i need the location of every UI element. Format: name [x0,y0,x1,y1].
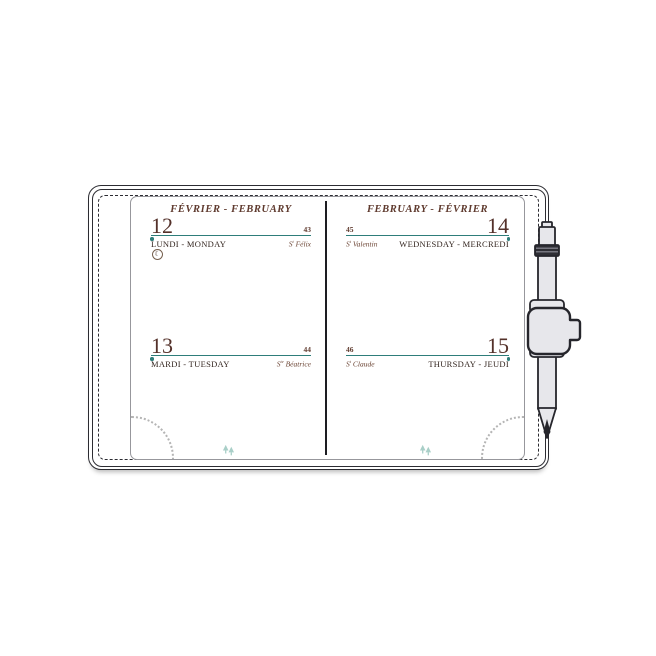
corner-arc-icon [130,416,174,460]
day-entry-wednesday-14: 45 14 St Valentin WEDNESDAY - MERCREDI [346,214,509,249]
rule-dot [150,237,154,241]
entry-rule [346,235,509,236]
day-of-year: 46 [346,344,354,355]
day-number: 15 [487,336,509,355]
day-number: 12 [151,216,173,235]
day-name: THURSDAY - JEUDI [428,359,509,369]
entry-rule [346,355,509,356]
rule-dot [150,357,154,361]
tree-icon [419,444,432,457]
day-entry-thursday-15: 46 15 St Claude THURSDAY - JEUDI [346,334,509,369]
day-of-year: 45 [346,224,354,235]
day-name: WEDNESDAY - MERCREDI [399,239,509,249]
tree-icon [222,444,235,457]
pen-icon [518,220,584,446]
day-entry-monday-12: 12 43 LUNDI - MONDAY St Félix [151,214,311,249]
day-number: 13 [151,336,173,355]
saint-of-day: Ste Béatrice [277,359,311,369]
entry-rule [151,235,311,236]
day-name: MARDI - TUESDAY [151,359,230,369]
saint-of-day: St Claude [346,359,375,369]
moon-phase-icon: ☾ [152,249,163,260]
day-number: 14 [487,216,509,235]
day-entry-tuesday-13: 13 44 MARDI - TUESDAY Ste Béatrice [151,334,311,369]
rule-dot [507,237,511,241]
product-image: FÉVRIER - FEBRUARY FEBRUARY - FÉVRIER 12… [0,0,656,656]
rule-dot [507,357,511,361]
day-of-year: 43 [304,224,312,235]
center-spine-divider [325,201,328,455]
diary-pages: FÉVRIER - FEBRUARY FEBRUARY - FÉVRIER 12… [130,196,525,460]
day-name: LUNDI - MONDAY [151,239,226,249]
entry-rule [151,355,311,356]
saint-of-day: St Félix [289,239,311,249]
saint-of-day: St Valentin [346,239,377,249]
day-of-year: 44 [304,344,312,355]
